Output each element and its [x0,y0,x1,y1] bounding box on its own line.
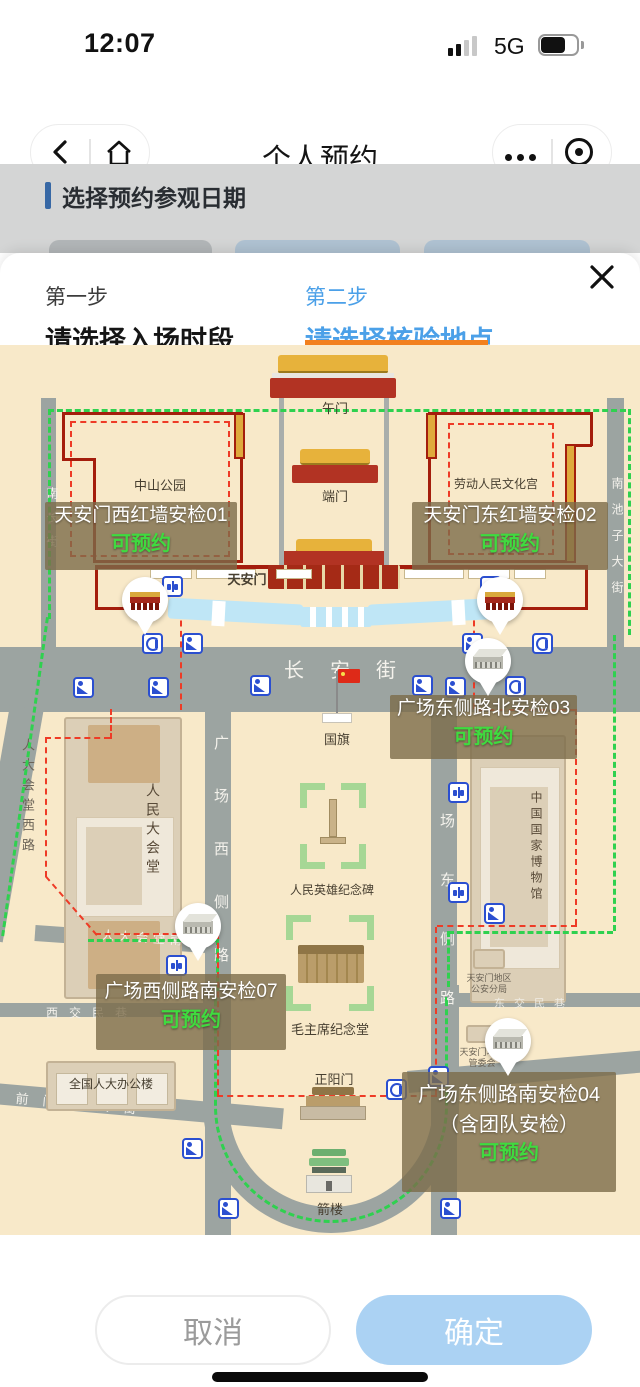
pin-checkpoint-04[interactable] [485,1018,531,1080]
duanmen-building [292,449,378,485]
wall-west-left1 [62,412,65,460]
zhengyangmen-building [300,1087,366,1121]
boundary-red-w1 [180,610,182,710]
status-time: 12:07 [84,28,156,59]
river-west [168,597,304,625]
gate-icon [485,592,515,610]
checkpoint-04[interactable]: 广场东侧路南安检04 （含团队安检） 可预约 [402,1072,616,1192]
checkpoint-status: 可预约 [402,1140,616,1166]
label-national-museum: 中国国家博物馆 [528,791,545,903]
label-heroes-monument: 人民英雄纪念碑 [282,881,382,898]
label-zhengyangmen: 正阳门 [308,1069,360,1088]
pin-checkpoint-03[interactable] [465,638,511,700]
street-name-nanchizi: 南池子大街 [609,477,626,607]
wumen-building [270,355,396,399]
checkpoint-01[interactable]: 天安门西红墙安检01 可预约 [45,502,237,570]
underpass-icon [440,1198,461,1219]
police-branch-building [473,949,505,969]
wall-east-r1 [590,412,593,446]
label-great-hall: 人民大会堂 [143,783,163,878]
minimize-target-dot [575,148,583,156]
network-type: 5G [494,33,525,60]
signal-icon [448,36,484,56]
wall-forecourt-west [95,565,98,610]
checkpoint-status: 可预约 [96,1007,286,1033]
building-icon [473,656,503,669]
label-npc-office: 全国人大办公楼 [48,1075,174,1092]
checkpoint-07[interactable]: 广场西侧路南安检07 可预约 [96,974,286,1050]
status-bar: 12:07 5G [0,0,640,64]
mao-memorial-icon [298,945,364,983]
boundary-red-w4 [45,737,47,877]
wall-west-top [62,412,242,415]
wall-west-gold [234,413,245,459]
tiananmen-building [268,539,400,589]
stand [276,569,312,579]
underpass-icon [412,675,433,696]
restroom-icon [448,782,469,803]
confirm-button[interactable]: 确定 [356,1295,592,1365]
wall-forecourt-east [585,565,588,610]
street-name-dongjiaominxiang: 东交民巷 [494,995,574,1011]
wall-east-gold-top [426,413,437,459]
great-hall-building [64,717,182,999]
boundary-red-w3 [45,737,110,739]
checkpoint-02[interactable]: 天安门东红墙安检02 可预约 [412,502,608,570]
checkpoint-sheet: 第一步 请选择入场时段 第二步 请选择核验地点 前门西大街 长安街 南池子大街 … [0,253,640,1387]
step2-label: 第二步 [305,281,565,311]
river-bridges [300,607,372,627]
checkpoint-03[interactable]: 广场东侧路北安检03 可预约 [390,695,577,759]
label-tiananmen: 天安门 [224,569,270,588]
step1-label: 第一步 [45,281,285,311]
cancel-button[interactable]: 取消 [95,1295,331,1365]
pin-checkpoint-02[interactable] [477,577,523,639]
road-corridor-east [384,380,389,565]
checkpoint-status: 可预约 [390,724,577,750]
checkpoint-name: 天安门西红墙安检01 [45,502,237,531]
route-green-right-turn [448,931,613,934]
label-police-line2: 公安分局 [462,982,516,995]
checkpoint-name: 广场东侧路南安检04 [402,1080,616,1110]
label-wumen: 午门 [313,398,357,417]
boundary-red-w2 [110,709,112,739]
underpass-icon [73,677,94,698]
battery-icon [538,34,586,56]
checkpoint-name-line2: （含团队安检） [402,1110,616,1140]
underpass-icon [218,1198,239,1219]
wall-east-jog [575,444,592,447]
stand [404,569,464,579]
building-icon [493,1036,523,1049]
checkpoint-status: 可预约 [45,531,237,557]
route-green-east-inner [447,931,450,987]
close-icon[interactable] [586,261,618,293]
label-cultural-palace: 劳动人民文化宫 [450,475,542,492]
wall-east-top [428,412,590,415]
checkpoint-name: 天安门东红墙安检02 [412,502,608,531]
building-icon [183,921,213,934]
dim-overlay [0,164,640,253]
wall-forecourt-east-b [515,607,585,610]
pin-checkpoint-07[interactable] [175,903,221,965]
checkpoint-map: 前门西大街 长安街 南池子大街 南长街 广场西侧路 场东侧路 人大会堂西路 人大… [0,345,640,1235]
jianlou-building [306,1149,352,1195]
home-indicator [212,1372,428,1382]
capsule-divider [551,139,553,167]
nav-bar: 个人预约 [0,64,640,164]
underpass-icon [182,1138,203,1159]
metro-icon [532,633,553,654]
label-national-flag: 国旗 [315,729,359,748]
restroom-icon [448,882,469,903]
underpass-icon [484,903,505,924]
underpass-icon [182,633,203,654]
heroes-monument-icon [320,799,346,851]
bridge-gap [211,601,225,627]
bridge-gap [451,600,465,626]
gate-icon [130,592,160,610]
label-mao-memorial: 毛主席纪念堂 [284,1019,376,1038]
route-green-right-top [628,409,631,635]
boundary-red-e2 [437,925,577,927]
underpass-icon [250,675,271,696]
checkpoint-status: 可预约 [412,531,608,557]
label-jianlou: 箭楼 [308,1199,352,1218]
road-corridor-west [279,380,284,565]
underpass-icon [148,677,169,698]
label-zhongshan-park: 中山公园 [120,475,200,494]
pin-checkpoint-01[interactable] [122,577,168,639]
route-green-right [613,635,616,931]
label-duanmen: 端门 [313,486,357,505]
checkpoint-name: 广场西侧路南安检07 [96,978,286,1007]
wall-west-jog [62,458,95,461]
dimmed-page-content: 选择预约参观日期 [0,164,640,253]
national-flag-icon [318,669,358,725]
